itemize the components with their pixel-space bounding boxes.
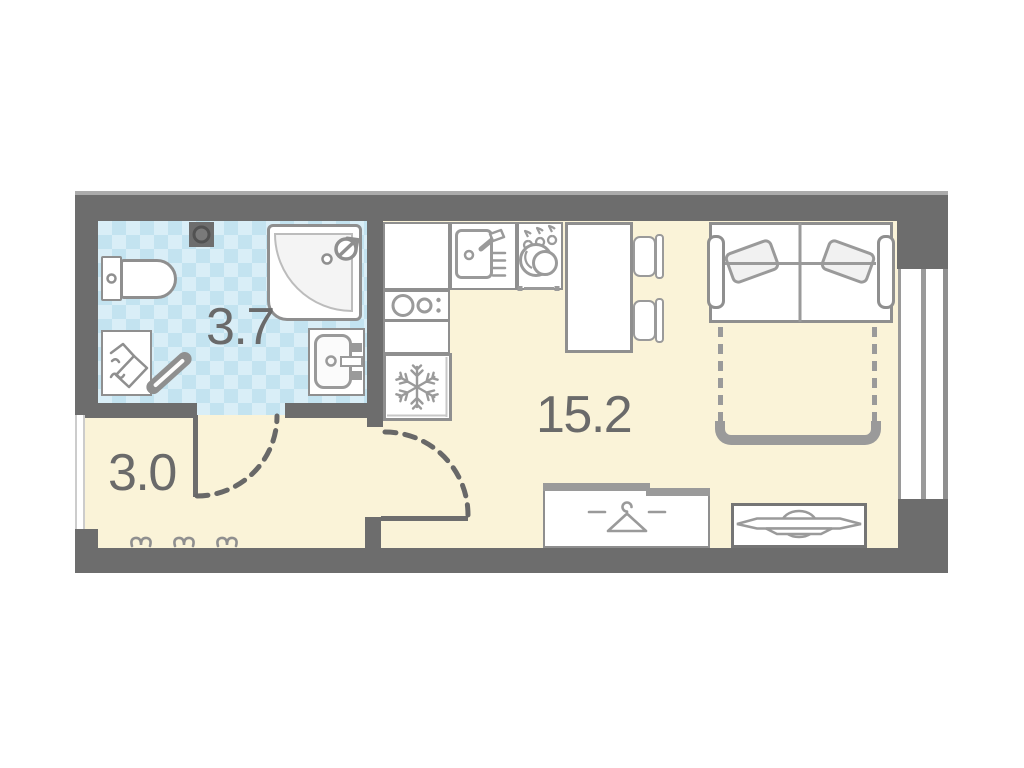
toilet-tank (101, 256, 122, 301)
wall-top-right-block (897, 195, 948, 269)
dining-table (565, 222, 633, 353)
chair-1-back (655, 234, 664, 279)
wardrobe (543, 489, 710, 548)
kitchen-cabinet-corner (383, 222, 450, 290)
window-mid-line (921, 269, 926, 499)
tv-dresser (731, 503, 867, 548)
hallway-area-label: 3.0 (108, 447, 176, 499)
wardrobe-door-track-left (543, 483, 650, 491)
dish-dryer-module (517, 222, 563, 290)
chair-2-seat (633, 300, 656, 341)
toilet-bowl (120, 259, 177, 299)
hob-module (383, 290, 450, 321)
bathroom-area-label: 3.7 (206, 301, 274, 353)
room-doorway-floor (367, 427, 383, 517)
wall-top (75, 195, 948, 221)
window-inner-line (898, 269, 901, 499)
sofa-armrest-left (707, 235, 725, 309)
bathroom-door-leaf (193, 415, 198, 497)
fridge (383, 353, 452, 421)
washing-machine (101, 330, 152, 396)
chair-1-seat (633, 236, 656, 277)
wall-bathroom-bottom-left (75, 403, 197, 418)
sofa-armrest-right (877, 235, 895, 309)
living-area-label: 15.2 (536, 389, 631, 441)
floor-plan-canvas: 3.7 3.0 15.2 (0, 0, 1024, 768)
shower-tray (267, 224, 362, 321)
vent-fan-box (189, 222, 214, 247)
bathroom-sink-basin (314, 334, 352, 389)
chair-2-back (655, 298, 664, 343)
wall-bottom-right-block (898, 499, 948, 573)
bed-outline-dashed-right (872, 327, 877, 423)
bed-outline-dashed-left (718, 327, 723, 423)
kitchen-cabinet-lower (383, 320, 450, 354)
bed-foot-board (715, 421, 881, 445)
wall-bathroom-right (367, 221, 383, 427)
kitchen-sink-module (450, 222, 517, 290)
window-outer-line (943, 269, 948, 499)
wardrobe-door-track-right (646, 488, 710, 496)
entrance-niche (75, 415, 85, 529)
wall-left (75, 195, 98, 415)
room-door-leaf (381, 516, 468, 521)
wall-bottom (75, 548, 948, 573)
wall-bottom-left-stub (75, 529, 98, 548)
wall-doorway-stub (365, 517, 381, 548)
